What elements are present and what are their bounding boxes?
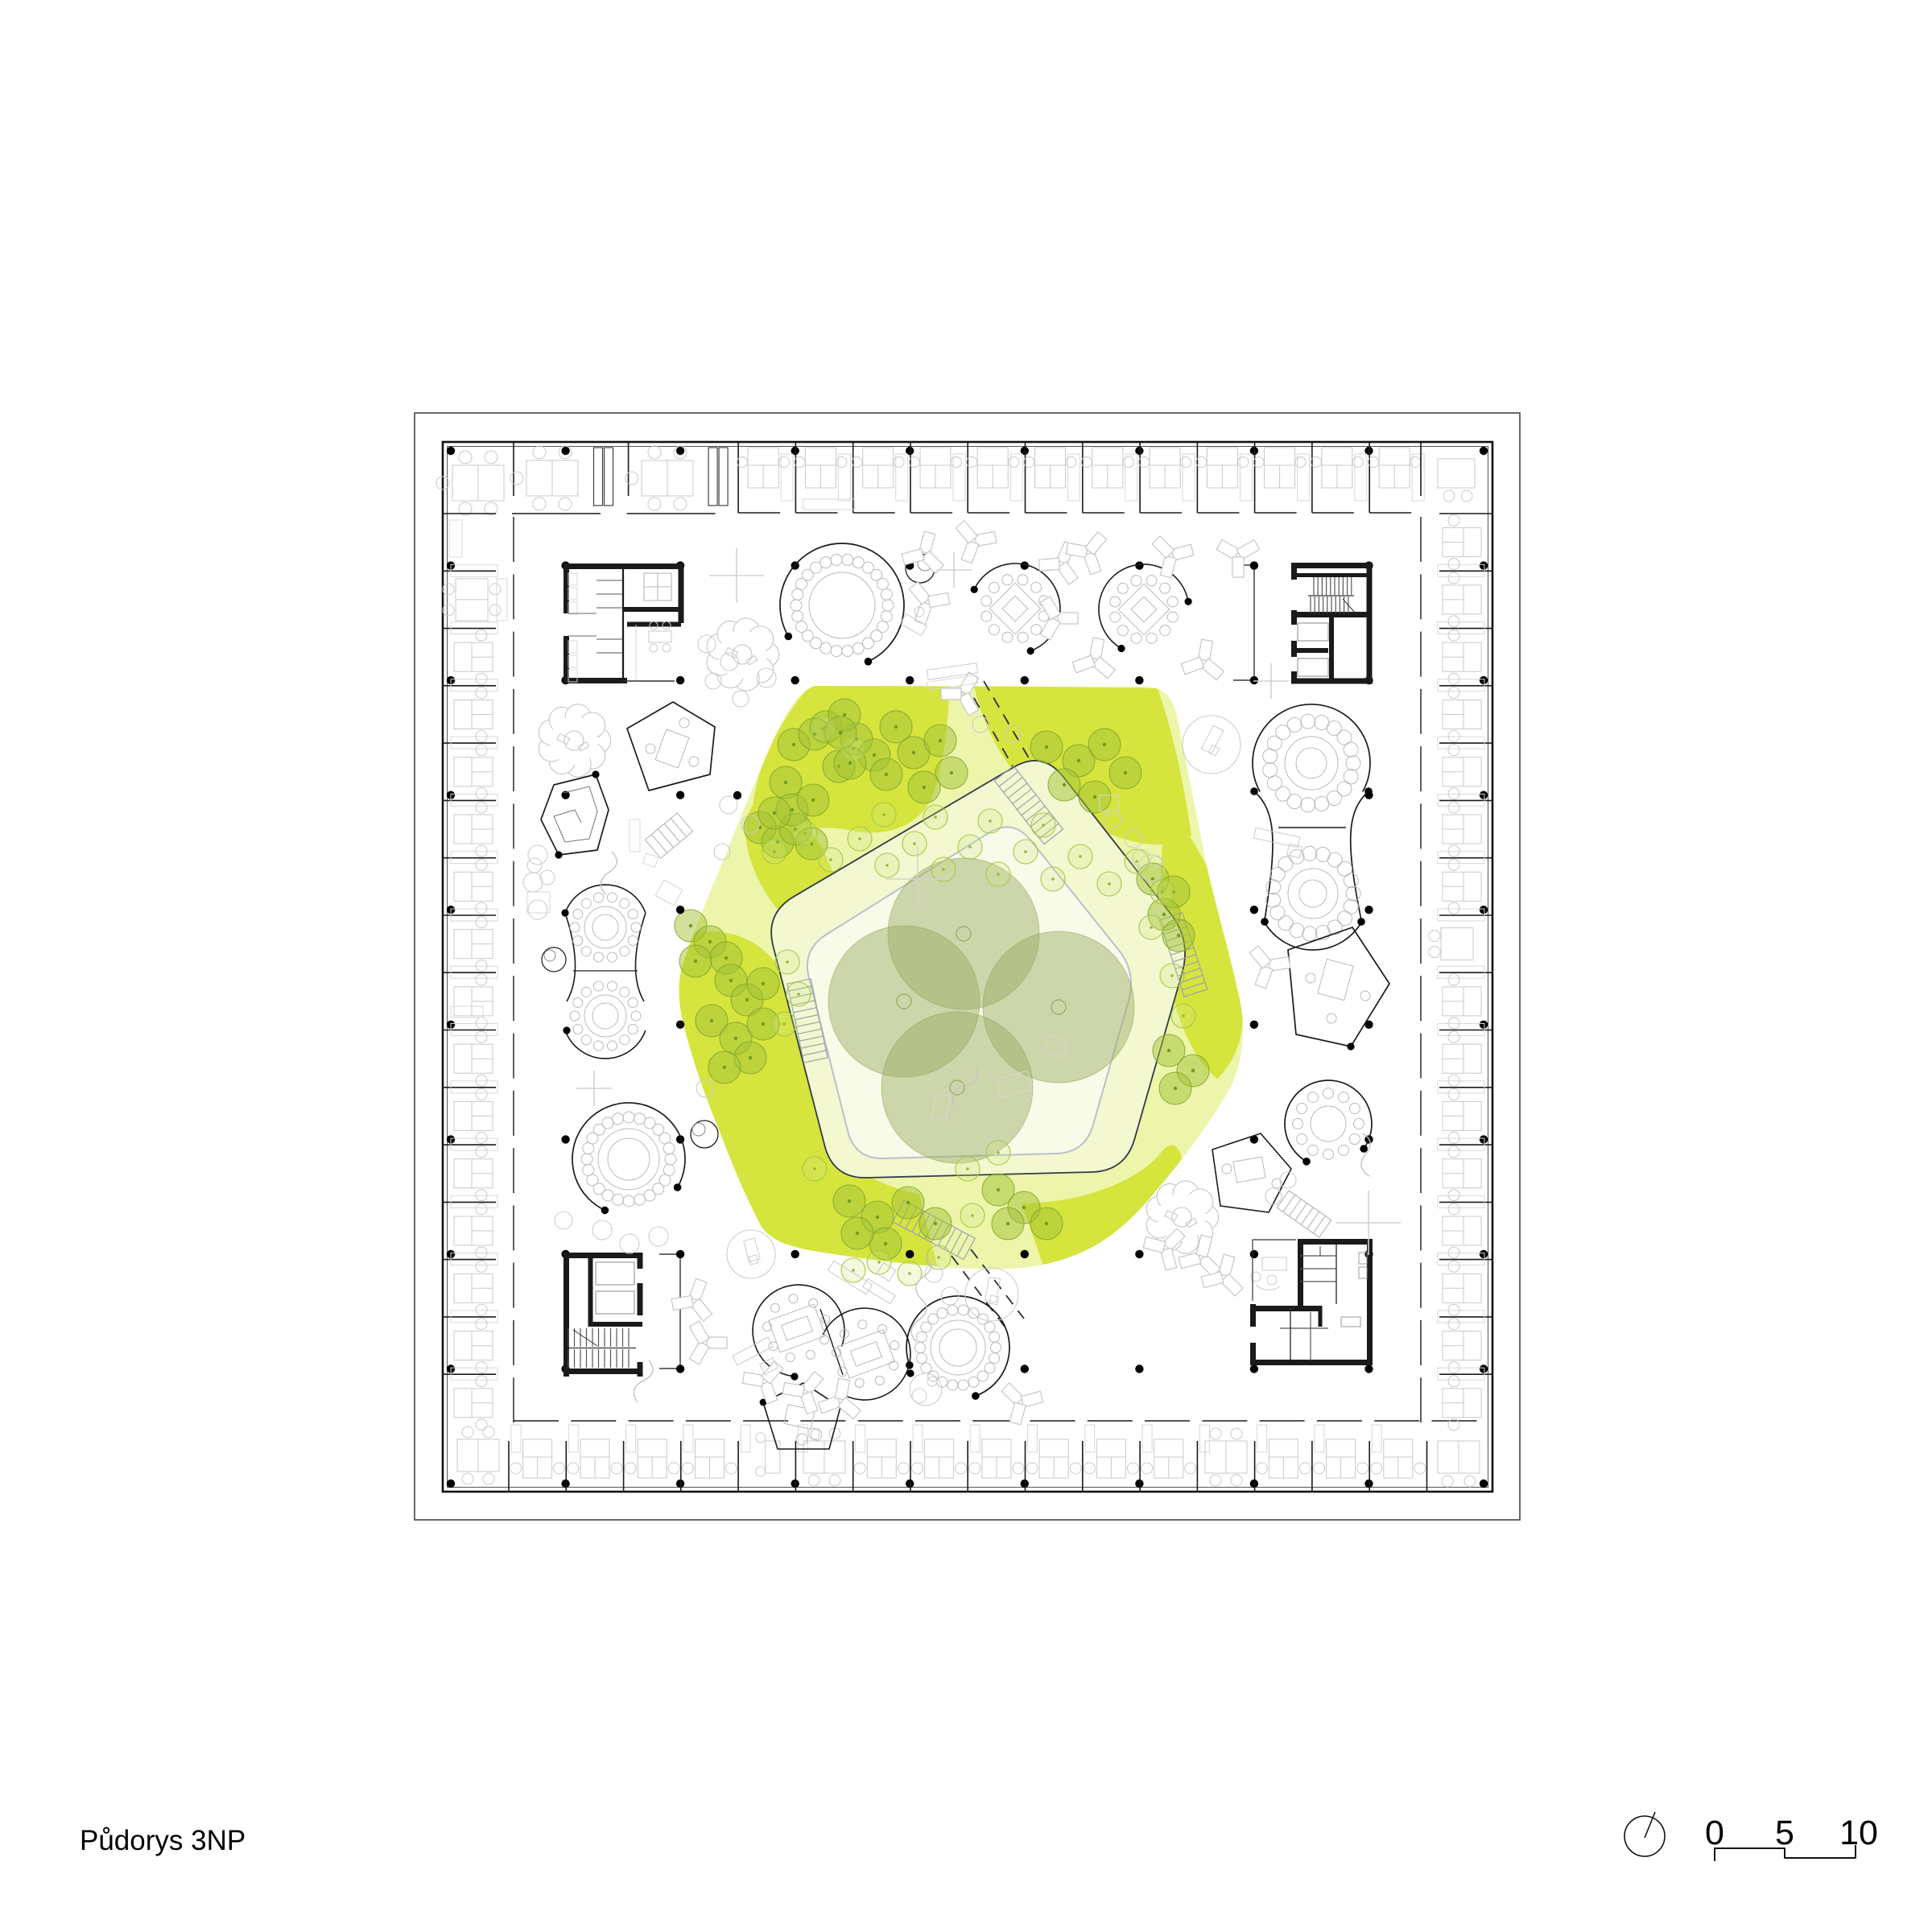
svg-text:10: 10 — [1839, 1814, 1878, 1852]
svg-text:5: 5 — [1775, 1814, 1794, 1852]
svg-text:Půdorys 3NP: Půdorys 3NP — [80, 1825, 246, 1856]
svg-text:0: 0 — [1705, 1814, 1724, 1852]
